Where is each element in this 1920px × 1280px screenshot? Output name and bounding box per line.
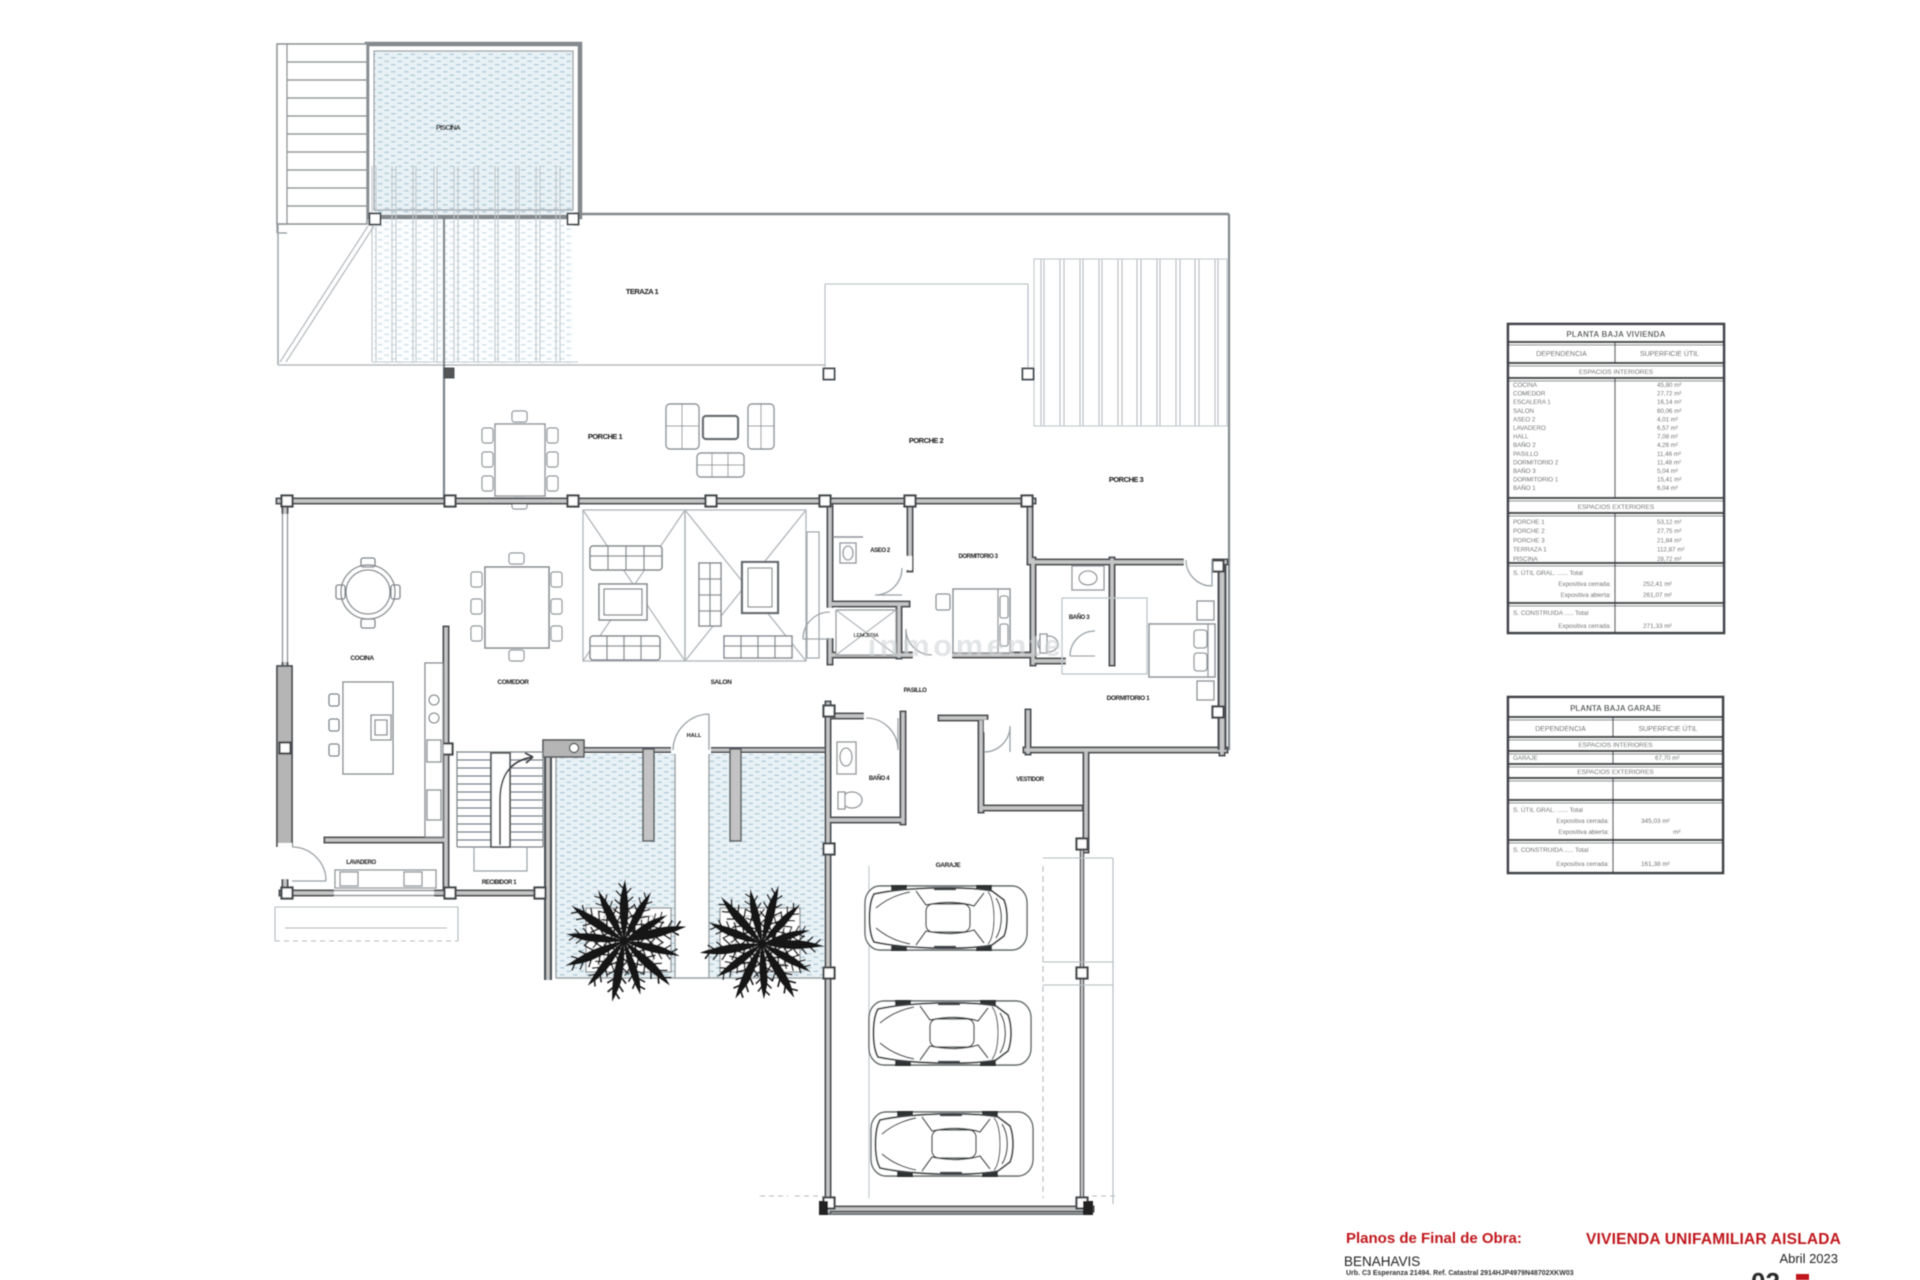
- svg-text:SUPERFICIE ÚTIL: SUPERFICIE ÚTIL: [1640, 349, 1699, 358]
- svg-text:HALL: HALL: [1513, 434, 1529, 441]
- svg-text:COMEDOR: COMEDOR: [1513, 391, 1546, 398]
- svg-text:45,80 m²: 45,80 m²: [1657, 382, 1681, 389]
- svg-text:252,41 m²: 252,41 m²: [1643, 581, 1672, 588]
- svg-text:SALON: SALON: [1513, 408, 1534, 415]
- svg-text:7,08 m²: 7,08 m²: [1657, 434, 1678, 441]
- svg-text:DORMITORIO 2: DORMITORIO 2: [1513, 459, 1559, 466]
- svg-text:53,12 m²: 53,12 m²: [1657, 519, 1681, 526]
- svg-text:LAVADERO: LAVADERO: [346, 860, 376, 866]
- svg-text:PISCINA: PISCINA: [436, 125, 461, 132]
- svg-text:PISCINA: PISCINA: [1513, 556, 1539, 563]
- svg-text:ASEO 2: ASEO 2: [870, 548, 891, 554]
- svg-text:15,41 m²: 15,41 m²: [1657, 477, 1681, 484]
- svg-text:4,26 m²: 4,26 m²: [1657, 442, 1678, 449]
- svg-text:5,04 m²: 5,04 m²: [1657, 468, 1678, 475]
- svg-text:TERAZA 1: TERAZA 1: [626, 287, 659, 296]
- svg-text:161,38 m²: 161,38 m²: [1641, 861, 1670, 868]
- svg-text:21,84 m²: 21,84 m²: [1657, 537, 1681, 544]
- svg-text:SUPERFICIE ÚTIL: SUPERFICIE ÚTIL: [1638, 724, 1697, 733]
- svg-text:PORCHE 1: PORCHE 1: [588, 432, 623, 441]
- svg-text:67,70 m²: 67,70 m²: [1655, 755, 1679, 762]
- svg-text:COCINA: COCINA: [350, 655, 374, 662]
- svg-text:S. ÚTIL GRAL. ...... Total: S. ÚTIL GRAL. ...... Total: [1513, 568, 1583, 577]
- svg-text:345,03 m²: 345,03 m²: [1641, 818, 1670, 825]
- svg-text:inmomente: inmomente: [868, 628, 1065, 663]
- svg-text:112,87 m²: 112,87 m²: [1657, 547, 1684, 554]
- svg-text:HALL: HALL: [687, 733, 702, 739]
- svg-text:m²: m²: [1673, 829, 1680, 836]
- svg-text:ASEO 2: ASEO 2: [1513, 416, 1536, 423]
- svg-text:DEPENDENCIA: DEPENDENCIA: [1535, 726, 1586, 733]
- svg-text:11,46 m²: 11,46 m²: [1657, 451, 1681, 458]
- svg-text:COCINA: COCINA: [1513, 382, 1538, 389]
- svg-text:16,14 m²: 16,14 m²: [1657, 399, 1681, 406]
- svg-text:PORCHE 2: PORCHE 2: [909, 436, 944, 445]
- svg-text:BAÑO 3: BAÑO 3: [1069, 614, 1090, 621]
- svg-text:DORMITORIO 1: DORMITORIO 1: [1107, 695, 1151, 702]
- svg-text:4,01 m²: 4,01 m²: [1657, 416, 1678, 423]
- svg-text:Expositiva cerrada:: Expositiva cerrada:: [1558, 623, 1611, 630]
- svg-text:PORCHE 3: PORCHE 3: [1109, 475, 1144, 484]
- svg-text:S. CONSTRUIDA ..... Total: S. CONSTRUIDA ..... Total: [1513, 847, 1589, 854]
- svg-text:27,72 m²: 27,72 m²: [1657, 391, 1681, 398]
- svg-text:GARAJE: GARAJE: [1513, 755, 1538, 762]
- svg-text:DORMITORIO 1: DORMITORIO 1: [1513, 477, 1559, 484]
- svg-text:PLANTA BAJA GARAJE: PLANTA BAJA GARAJE: [1570, 704, 1661, 713]
- svg-text:Expositiva cerrada:: Expositiva cerrada:: [1558, 581, 1611, 588]
- svg-text:11,48 m²: 11,48 m²: [1657, 459, 1681, 466]
- svg-text:PASILLO: PASILLO: [904, 688, 927, 694]
- svg-text:271,33 m²: 271,33 m²: [1643, 623, 1672, 630]
- svg-text:6,04 m²: 6,04 m²: [1657, 485, 1678, 492]
- svg-text:27,75 m²: 27,75 m²: [1657, 528, 1681, 535]
- svg-text:DEPENDENCIA: DEPENDENCIA: [1536, 351, 1587, 358]
- svg-text:PORCHE 3: PORCHE 3: [1513, 537, 1545, 544]
- svg-text:S. CONSTRUIDA ..... Total: S. CONSTRUIDA ..... Total: [1513, 610, 1589, 617]
- svg-text:Expositiva cerrada:: Expositiva cerrada:: [1556, 861, 1609, 868]
- svg-text:RECIBIDOR 1: RECIBIDOR 1: [482, 880, 517, 886]
- svg-text:BENAHAVIS: BENAHAVIS: [1344, 1254, 1420, 1269]
- svg-text:02: 02: [1751, 1267, 1780, 1280]
- svg-text:S. ÚTIL GRAL. ...... Total: S. ÚTIL GRAL. ...... Total: [1513, 805, 1583, 814]
- svg-text:GARAJE: GARAJE: [936, 862, 962, 869]
- svg-text:ESPACIOS EXTERIORES: ESPACIOS EXTERIORES: [1578, 504, 1655, 511]
- svg-text:ESPACIOS INTERIORES: ESPACIOS INTERIORES: [1579, 369, 1654, 376]
- svg-text:BAÑO 4: BAÑO 4: [869, 775, 890, 782]
- svg-text:Expositiva cerrada:: Expositiva cerrada:: [1556, 818, 1609, 825]
- svg-text:ESPACIOS EXTERIORES: ESPACIOS EXTERIORES: [1577, 769, 1654, 776]
- svg-text:VIVIENDA UNIFAMILIAR AISLADA: VIVIENDA UNIFAMILIAR AISLADA: [1586, 1231, 1841, 1248]
- svg-text:Expositiva abierta:: Expositiva abierta:: [1558, 829, 1609, 836]
- svg-text:LAVADERO: LAVADERO: [1513, 425, 1546, 432]
- svg-text:ESCALERA 1: ESCALERA 1: [1513, 399, 1551, 406]
- svg-text:PASILLO: PASILLO: [1513, 451, 1539, 458]
- svg-text:PORCHE 1: PORCHE 1: [1513, 519, 1545, 526]
- svg-text:Abril 2023: Abril 2023: [1779, 1251, 1838, 1266]
- svg-text:Expositiva abierta:: Expositiva abierta:: [1560, 592, 1611, 599]
- svg-text:TERRAZA 1: TERRAZA 1: [1513, 547, 1547, 554]
- svg-text:Urb. C3 Esperanza 21494. Ref.: Urb. C3 Esperanza 21494. Ref. Catastral …: [1346, 1270, 1574, 1277]
- svg-text:DORMITORIO 3: DORMITORIO 3: [958, 554, 998, 560]
- svg-text:60,06 m²: 60,06 m²: [1657, 408, 1681, 415]
- svg-text:PORCHE 2: PORCHE 2: [1513, 528, 1545, 535]
- svg-text:VESTIDOR: VESTIDOR: [1016, 777, 1045, 783]
- svg-text:BAÑO 1: BAÑO 1: [1513, 485, 1536, 492]
- svg-text:6,57 m²: 6,57 m²: [1657, 425, 1678, 432]
- svg-text:261,07 m²: 261,07 m²: [1643, 592, 1672, 599]
- svg-text:Planos de Final de Obra:: Planos de Final de Obra:: [1346, 1230, 1522, 1247]
- svg-text:BAÑO 3: BAÑO 3: [1513, 468, 1536, 475]
- svg-text:PLANTA BAJA VIVIENDA: PLANTA BAJA VIVIENDA: [1566, 330, 1665, 339]
- svg-text:BAÑO 2: BAÑO 2: [1513, 442, 1536, 449]
- svg-text:COMEDOR: COMEDOR: [497, 679, 529, 686]
- svg-text:SALON: SALON: [711, 679, 732, 686]
- svg-text:ESPACIOS INTERIORES: ESPACIOS INTERIORES: [1578, 742, 1653, 749]
- svg-text:28,72 m²: 28,72 m²: [1657, 556, 1681, 563]
